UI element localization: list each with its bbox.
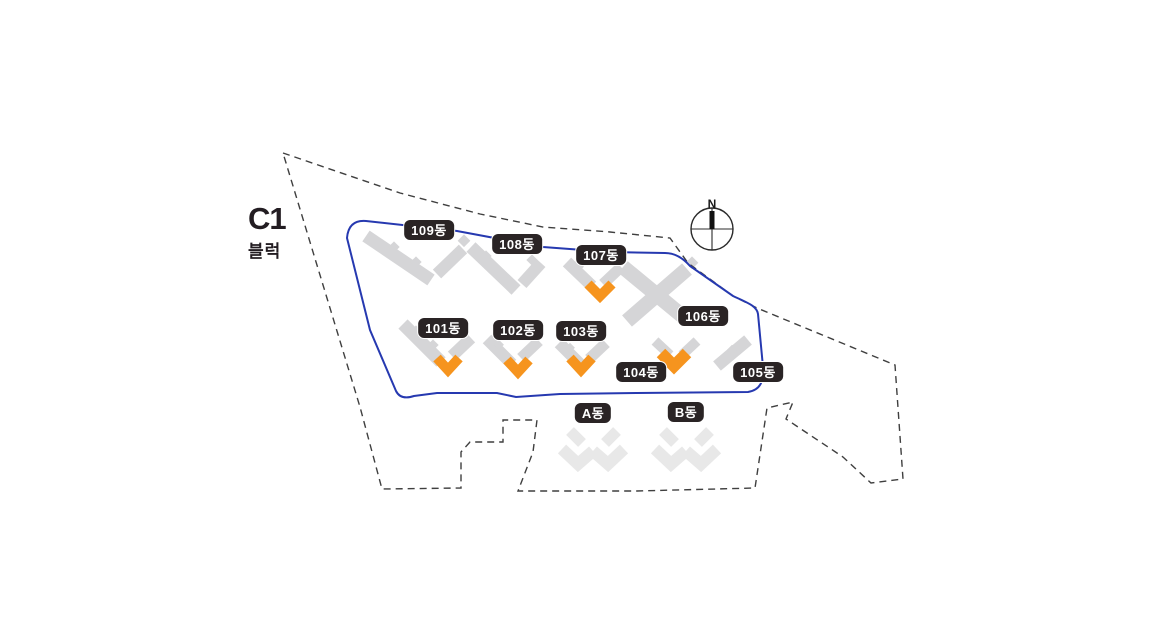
building-107-marker [588,284,612,296]
block-title: C1 블럭 [248,203,286,262]
building-label-109[interactable]: 109동 [403,219,455,241]
building-label-B[interactable]: B동 [667,401,705,423]
building-label-A[interactable]: A동 [574,402,612,424]
block-code: C1 [248,203,286,234]
block-name-label: 블럭 [248,237,286,262]
building-label-108[interactable]: 108동 [491,233,543,255]
building-label-105[interactable]: 105동 [732,361,784,383]
site-map: C1 블럭 N 109동 108동 107동 106동 101동 102동 10… [0,0,1160,640]
building-label-106[interactable]: 106동 [677,305,729,327]
building-A-shape [562,431,624,464]
building-109-shape [366,234,470,280]
building-label-104[interactable]: 104동 [615,361,667,383]
building-label-102[interactable]: 102동 [492,319,544,341]
building-label-103[interactable]: 103동 [555,320,607,342]
compass-north-label: N [708,197,717,211]
building-B-shape [655,431,717,464]
building-label-101[interactable]: 101동 [417,317,469,339]
building-102-marker [507,360,529,372]
buildings-layer [366,234,748,464]
north-compass [691,208,733,250]
building-101-marker [437,358,459,370]
building-label-107[interactable]: 107동 [575,244,627,266]
